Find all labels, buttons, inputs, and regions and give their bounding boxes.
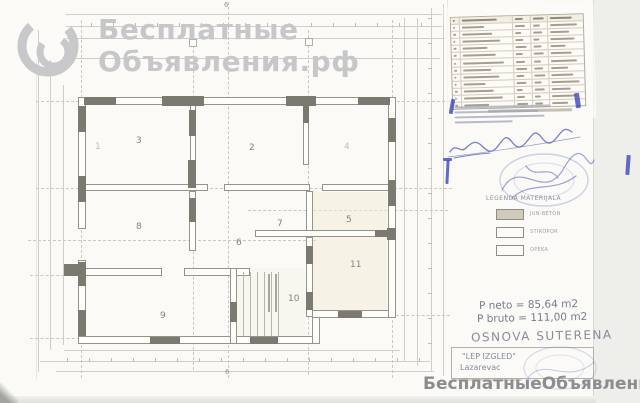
cell-text-smudge bbox=[453, 20, 455, 22]
cell-text-smudge bbox=[534, 60, 541, 62]
cell-text-smudge bbox=[463, 54, 496, 57]
cell-text-smudge bbox=[534, 67, 543, 69]
cell-text-smudge bbox=[514, 18, 522, 20]
cell-text-smudge bbox=[515, 46, 526, 48]
stair-tread bbox=[264, 272, 265, 336]
wall-pier bbox=[189, 110, 196, 136]
cell-text-smudge bbox=[455, 84, 458, 86]
axis-line bbox=[30, 338, 80, 339]
cell-text-smudge bbox=[454, 55, 457, 57]
cell-text-smudge bbox=[534, 53, 544, 55]
room-number-10: 10 bbox=[288, 294, 299, 304]
cell-text-smudge bbox=[535, 81, 542, 83]
cell-text-smudge bbox=[463, 68, 491, 71]
cell-text-smudge bbox=[552, 73, 574, 76]
legend-label: OPEKA bbox=[530, 247, 548, 253]
cell-text-smudge bbox=[464, 90, 495, 93]
axis-line bbox=[28, 240, 316, 241]
wall-pier bbox=[286, 96, 316, 106]
cell-text-smudge bbox=[516, 89, 523, 91]
cell-text-smudge bbox=[551, 52, 571, 55]
legend-item: STIROPOR bbox=[496, 223, 561, 241]
wall-pier bbox=[84, 97, 116, 105]
stair-tread bbox=[257, 272, 258, 336]
wall-pier bbox=[230, 302, 237, 322]
cell-text-smudge bbox=[463, 75, 499, 78]
cell-text-smudge bbox=[516, 82, 526, 84]
dimension-line bbox=[50, 60, 51, 350]
wall-pier bbox=[388, 118, 396, 142]
watermark-line2: Объявления.рф bbox=[98, 45, 360, 78]
cell-text-smudge bbox=[454, 69, 457, 71]
legend-item: OPEKA bbox=[496, 241, 561, 259]
wall-pier bbox=[78, 106, 86, 132]
cell-text-smudge bbox=[516, 67, 528, 69]
legend-label: STIROPOR bbox=[530, 229, 558, 235]
cell-text-smudge bbox=[462, 26, 484, 29]
wall-pier bbox=[375, 230, 393, 237]
cell-text-smudge bbox=[516, 60, 525, 62]
text-line-smudge bbox=[455, 120, 513, 123]
room-number-11: 11 bbox=[350, 260, 361, 270]
legend-title: LEGENDA MATERIJALA bbox=[486, 195, 561, 202]
cell-text-smudge bbox=[552, 80, 579, 83]
wall-pier bbox=[306, 292, 313, 310]
wall bbox=[322, 184, 396, 191]
cell-text-smudge bbox=[454, 76, 456, 78]
room-tint bbox=[313, 192, 387, 310]
wall-pier bbox=[188, 160, 196, 188]
cell-text-smudge bbox=[550, 23, 577, 26]
cell-text-smudge bbox=[535, 74, 546, 76]
dimension-line bbox=[56, 371, 434, 372]
cell-text-smudge bbox=[454, 62, 456, 64]
cell-text-smudge bbox=[455, 91, 458, 93]
stair-tread bbox=[243, 272, 244, 336]
cell-text-smudge bbox=[515, 25, 525, 27]
cell-text-smudge bbox=[462, 40, 500, 43]
room-number-5: 5 bbox=[346, 215, 352, 225]
cell-text-smudge bbox=[453, 41, 455, 43]
cell-text-smudge bbox=[454, 48, 457, 50]
axis-marker: 6 bbox=[224, 1, 228, 9]
site-logo-icon bbox=[12, 8, 82, 84]
legend-swatch-1 bbox=[496, 227, 524, 238]
wall-pier bbox=[250, 337, 278, 344]
axis-line bbox=[396, 315, 450, 316]
cell-text-smudge bbox=[550, 17, 572, 20]
cell-text-smudge bbox=[462, 33, 492, 36]
cell-text-smudge bbox=[517, 96, 526, 98]
wall-pier bbox=[78, 310, 86, 336]
room-schedule-table bbox=[450, 13, 587, 110]
legend-items: JUN-BETONSTIROPOROPEKA bbox=[496, 205, 561, 259]
stair-rail bbox=[275, 274, 277, 312]
stair-tread bbox=[250, 272, 251, 336]
room-number-7: 7 bbox=[277, 219, 283, 229]
wall-pier bbox=[388, 180, 396, 206]
legend-item: JUN-BETON bbox=[496, 205, 561, 223]
wall bbox=[255, 230, 395, 237]
cell-text-smudge bbox=[462, 47, 487, 50]
cell-text-smudge bbox=[533, 17, 544, 19]
stair-tread bbox=[271, 272, 272, 336]
cell-text-smudge bbox=[515, 32, 521, 34]
cell-text-smudge bbox=[516, 75, 524, 77]
wall-pier bbox=[338, 311, 362, 318]
room-number-9: 9 bbox=[160, 311, 166, 321]
legend-label: JUN-BETON bbox=[530, 211, 561, 217]
net-area-text: P neto = 85,64 m2 bbox=[479, 298, 578, 312]
cell-text-smudge bbox=[515, 53, 522, 55]
cell-text-smudge bbox=[551, 59, 576, 62]
cell-text-smudge bbox=[463, 61, 504, 64]
stair-tread bbox=[278, 272, 279, 336]
scanned-floorplan-photo: 123456789101166 LEGENDA MATERIJALA JUN-B… bbox=[0, 0, 640, 403]
dimension-line bbox=[64, 350, 400, 351]
cell-text-smudge bbox=[535, 88, 544, 90]
legend-swatch-0 bbox=[496, 209, 524, 220]
dimension-line bbox=[443, 4, 444, 376]
cell-text-smudge bbox=[533, 25, 540, 27]
cell-text-smudge bbox=[464, 96, 503, 99]
cell-text-smudge bbox=[552, 102, 567, 104]
room-number-1: 1 bbox=[95, 142, 101, 152]
firm-city: Lazarevac bbox=[460, 363, 501, 372]
wall-pier bbox=[64, 264, 82, 276]
wall bbox=[224, 184, 310, 191]
room-number-2: 2 bbox=[249, 143, 255, 153]
cell-text-smudge bbox=[535, 95, 541, 97]
legend-swatch-2 bbox=[496, 245, 524, 256]
cell-text-smudge bbox=[463, 83, 486, 86]
wall-pier bbox=[150, 337, 180, 344]
gross-area-text: P bruto = 111,00 m2 bbox=[477, 311, 588, 325]
cell-text-smudge bbox=[462, 19, 497, 22]
dimension-line bbox=[63, 85, 64, 345]
round-stamp bbox=[492, 146, 598, 212]
cell-text-smudge bbox=[551, 45, 566, 47]
site-watermark-bottom: БесплатныеОбъявления.рф bbox=[423, 374, 640, 394]
wall-pier bbox=[189, 198, 196, 222]
cell-text-smudge bbox=[453, 34, 456, 36]
wall bbox=[78, 97, 396, 105]
wall-pier bbox=[162, 96, 204, 106]
wall bbox=[184, 268, 250, 276]
wall-pier bbox=[303, 105, 309, 123]
watermark-line1: Бесплатные bbox=[98, 13, 299, 46]
room-number-8: 8 bbox=[136, 222, 142, 232]
room-number-6: 6 bbox=[236, 238, 242, 248]
wall bbox=[78, 336, 320, 344]
wall-pier bbox=[78, 176, 86, 202]
cell-text-smudge bbox=[552, 87, 571, 90]
room-number-4: 4 bbox=[344, 142, 350, 152]
stair-rail bbox=[268, 274, 270, 312]
dimension-ticks bbox=[46, 358, 426, 362]
cell-text-smudge bbox=[550, 31, 568, 34]
room-number-3: 3 bbox=[136, 136, 142, 146]
dimension-line bbox=[417, 18, 418, 366]
cell-text-smudge bbox=[552, 94, 576, 97]
cell-text-smudge bbox=[533, 32, 542, 34]
cell-text-smudge bbox=[551, 38, 575, 41]
dimension-line bbox=[404, 18, 405, 362]
firm-name: "LEP IZGLED" bbox=[462, 352, 516, 361]
cell-text-smudge bbox=[515, 39, 524, 41]
cell-text-smudge bbox=[551, 66, 568, 68]
axis-marker: 6 bbox=[225, 368, 229, 376]
cell-text-smudge bbox=[534, 39, 540, 41]
cell-text-smudge bbox=[534, 46, 542, 48]
wall-pier bbox=[358, 97, 390, 105]
wall-pier bbox=[306, 246, 313, 264]
cell-text-smudge bbox=[453, 27, 455, 29]
